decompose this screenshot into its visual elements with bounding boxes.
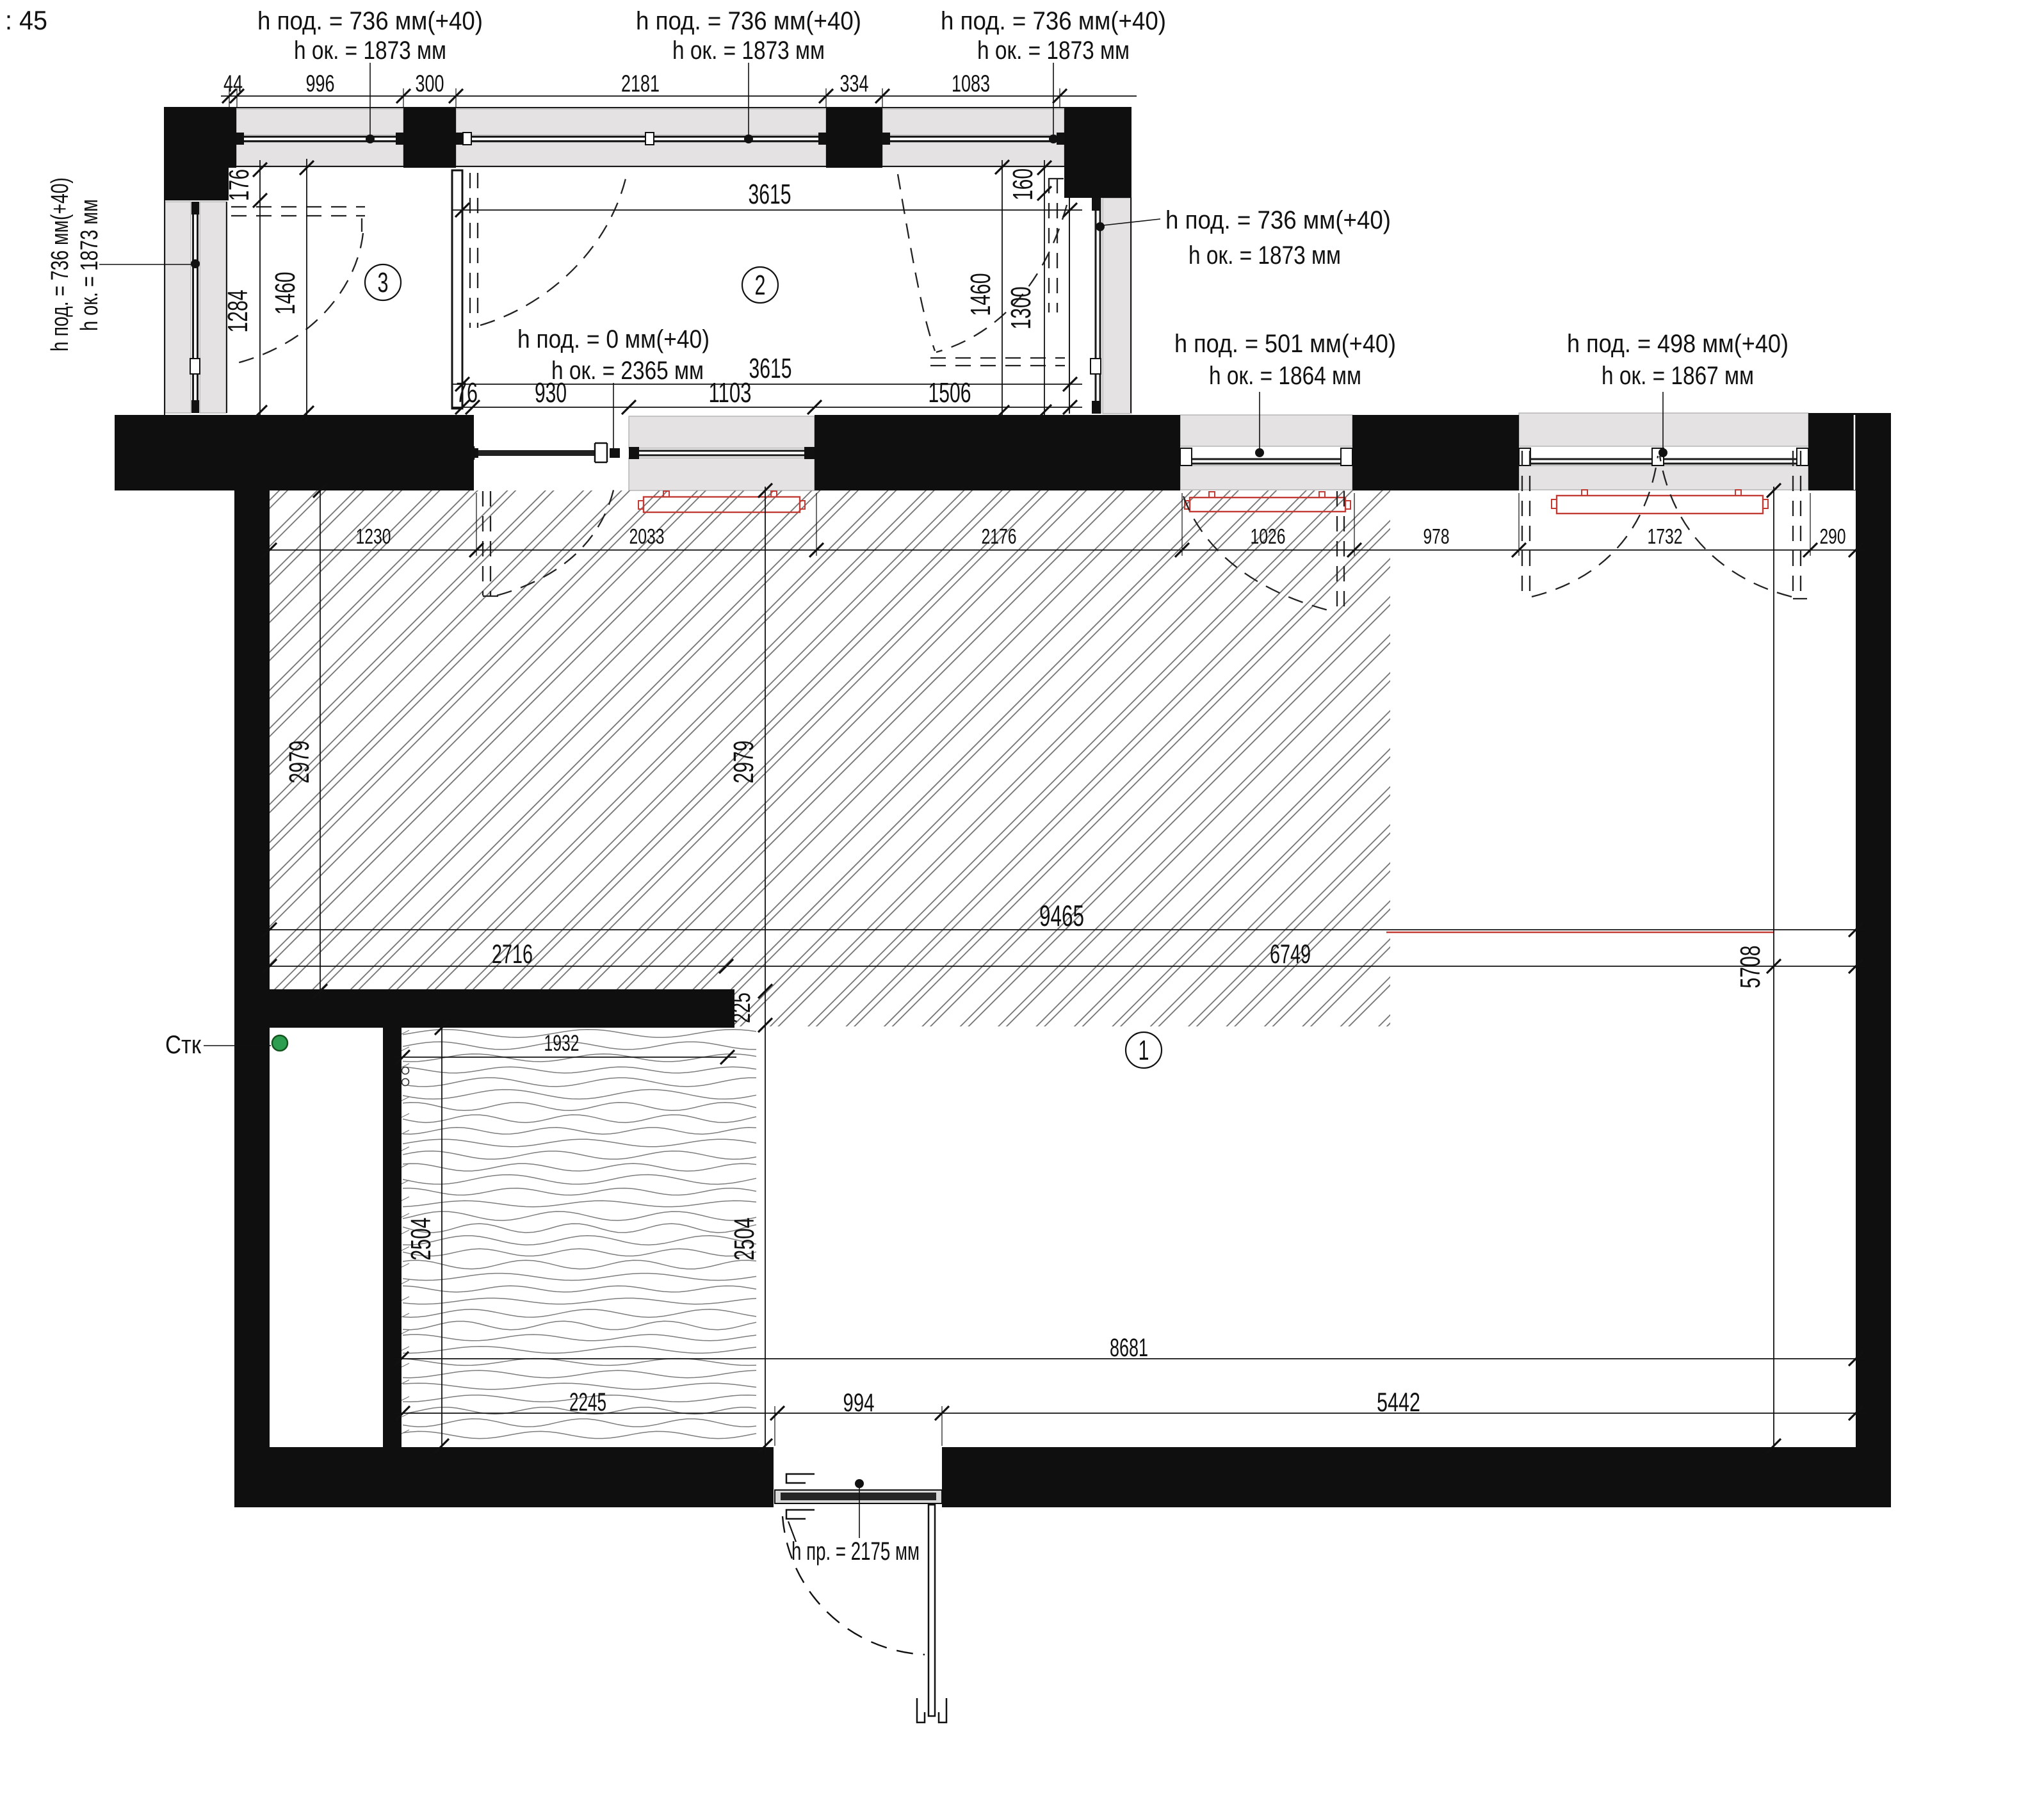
svg-text:1103: 1103	[709, 377, 752, 409]
svg-text:996: 996	[306, 70, 335, 97]
svg-text:1300: 1300	[1005, 287, 1037, 330]
svg-text:3: 3	[378, 267, 389, 298]
svg-text:h под. = 736 мм(+40): h под. = 736 мм(+40)	[257, 7, 483, 35]
svg-text:h ок. = 1867 мм: h ок. = 1867 мм	[1602, 362, 1754, 390]
svg-text:1284: 1284	[222, 290, 254, 333]
svg-text:h пр. = 2175 мм: h пр. = 2175 мм	[791, 1537, 920, 1566]
svg-text:176: 176	[223, 169, 255, 201]
svg-text:160: 160	[1007, 168, 1039, 200]
svg-text:2504: 2504	[729, 1218, 760, 1261]
svg-text:h ок. = 1873 мм: h ок. = 1873 мм	[76, 199, 103, 331]
svg-text:h под. = 501 мм(+40): h под. = 501 мм(+40)	[1174, 330, 1396, 358]
svg-text:h под. = 736 мм(+40): h под. = 736 мм(+40)	[636, 7, 861, 35]
svg-text:44: 44	[223, 70, 243, 97]
svg-text:3615: 3615	[749, 353, 792, 384]
svg-text:1932: 1932	[544, 1031, 580, 1056]
svg-text:: 45: : 45	[5, 5, 47, 35]
svg-text:1: 1	[1139, 1035, 1149, 1066]
svg-text:225: 225	[727, 992, 756, 1023]
svg-text:2245: 2245	[569, 1388, 606, 1416]
svg-text:1460: 1460	[965, 273, 996, 316]
svg-text:h ок. = 2365 мм: h ок. = 2365 мм	[551, 357, 704, 385]
svg-text:9465: 9465	[1039, 899, 1084, 932]
svg-text:2979: 2979	[728, 741, 759, 784]
svg-text:h ок. = 1873 мм: h ок. = 1873 мм	[294, 36, 446, 65]
svg-text:1026: 1026	[1251, 524, 1286, 548]
svg-text:930: 930	[535, 377, 567, 409]
svg-text:334: 334	[840, 70, 869, 97]
svg-text:1230: 1230	[356, 524, 391, 548]
svg-text:1506: 1506	[929, 377, 971, 409]
svg-text:h под. = 0 мм(+40): h под. = 0 мм(+40)	[517, 325, 710, 353]
svg-text:h под. = 736 мм(+40): h под. = 736 мм(+40)	[941, 7, 1166, 35]
svg-text:2176: 2176	[982, 524, 1017, 548]
svg-text:2: 2	[755, 270, 766, 301]
svg-text:h ок. = 1873 мм: h ок. = 1873 мм	[1188, 241, 1341, 270]
svg-text:1732: 1732	[1648, 524, 1683, 548]
svg-text:h под. = 736 мм(+40): h под. = 736 мм(+40)	[47, 177, 74, 352]
svg-text:3615: 3615	[749, 179, 791, 210]
svg-text:300: 300	[416, 70, 444, 97]
svg-text:994: 994	[843, 1389, 875, 1417]
svg-text:2033: 2033	[629, 524, 665, 548]
svg-text:h ок. = 1873 мм: h ок. = 1873 мм	[672, 36, 825, 65]
svg-text:h под. = 498 мм(+40): h под. = 498 мм(+40)	[1567, 330, 1788, 358]
svg-text:8681: 8681	[1110, 1334, 1148, 1362]
svg-text:2504: 2504	[405, 1218, 437, 1261]
svg-text:290: 290	[1820, 524, 1846, 548]
svg-text:5442: 5442	[1377, 1387, 1420, 1417]
svg-text:978: 978	[1423, 524, 1450, 548]
svg-text:1460: 1460	[270, 272, 301, 315]
svg-text:2181: 2181	[621, 70, 660, 97]
svg-text:h под. = 736 мм(+40): h под. = 736 мм(+40)	[1165, 206, 1391, 234]
svg-text:1083: 1083	[952, 70, 990, 97]
svg-text:h ок. = 1873 мм: h ок. = 1873 мм	[977, 36, 1130, 65]
svg-text:5708: 5708	[1735, 946, 1766, 989]
svg-text:6749: 6749	[1270, 939, 1311, 969]
svg-text:2979: 2979	[284, 741, 315, 784]
svg-text:Стк: Стк	[165, 1031, 201, 1059]
svg-text:h ок. = 1864 мм: h ок. = 1864 мм	[1209, 362, 1361, 390]
svg-text:2716: 2716	[492, 939, 533, 969]
svg-text:76: 76	[456, 377, 478, 409]
